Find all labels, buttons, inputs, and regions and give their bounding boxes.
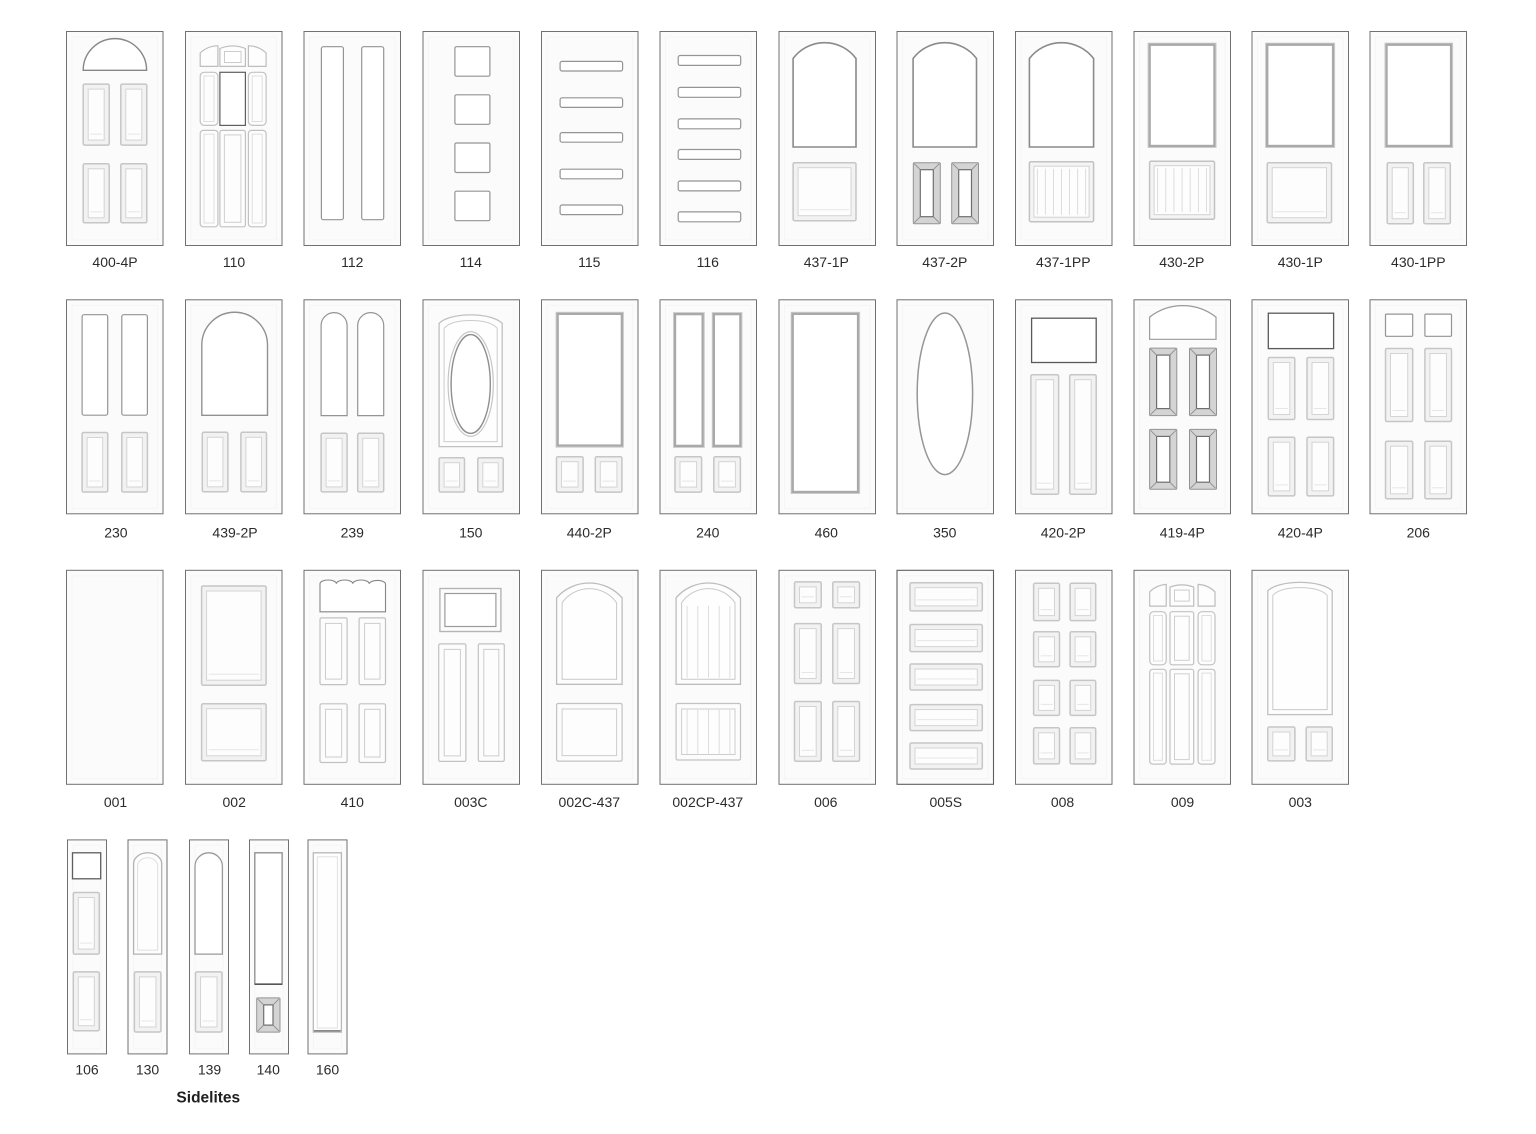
svg-text:430-1PP: 430-1PP xyxy=(1391,254,1445,270)
svg-text:350: 350 xyxy=(933,525,957,541)
svg-text:420-2P: 420-2P xyxy=(1041,525,1086,541)
svg-text:150: 150 xyxy=(459,525,483,541)
svg-text:410: 410 xyxy=(341,794,365,810)
svg-text:106: 106 xyxy=(75,1062,99,1078)
svg-text:419-4P: 419-4P xyxy=(1160,525,1205,541)
svg-text:002CP-437: 002CP-437 xyxy=(672,794,743,810)
svg-text:230: 230 xyxy=(104,525,128,541)
svg-text:439-2P: 439-2P xyxy=(212,525,257,541)
svg-text:002: 002 xyxy=(223,794,247,810)
svg-text:115: 115 xyxy=(578,254,601,270)
svg-text:008: 008 xyxy=(1051,794,1075,810)
svg-text:Sidelites: Sidelites xyxy=(176,1090,240,1107)
svg-text:130: 130 xyxy=(136,1062,160,1078)
svg-text:140: 140 xyxy=(257,1062,281,1078)
svg-text:239: 239 xyxy=(341,525,365,541)
svg-text:420-4P: 420-4P xyxy=(1278,525,1323,541)
svg-text:009: 009 xyxy=(1171,794,1195,810)
svg-text:240: 240 xyxy=(696,525,720,541)
svg-text:400-4P: 400-4P xyxy=(92,254,137,270)
svg-text:460: 460 xyxy=(815,525,839,541)
svg-text:116: 116 xyxy=(697,254,720,270)
svg-text:437-2P: 437-2P xyxy=(922,254,967,270)
svg-text:114: 114 xyxy=(460,254,483,270)
svg-text:003: 003 xyxy=(1289,794,1313,810)
svg-text:112: 112 xyxy=(341,254,364,270)
svg-text:430-2P: 430-2P xyxy=(1159,254,1204,270)
svg-text:437-1PP: 437-1PP xyxy=(1036,254,1090,270)
svg-text:139: 139 xyxy=(198,1062,222,1078)
svg-text:006: 006 xyxy=(814,794,838,810)
svg-text:206: 206 xyxy=(1407,525,1431,541)
svg-text:110: 110 xyxy=(223,254,246,270)
svg-text:430-1P: 430-1P xyxy=(1278,254,1323,270)
svg-text:440-2P: 440-2P xyxy=(567,525,612,541)
svg-text:160: 160 xyxy=(316,1062,340,1078)
svg-text:001: 001 xyxy=(104,794,128,810)
svg-text:003C: 003C xyxy=(454,794,487,810)
svg-text:437-1P: 437-1P xyxy=(804,254,849,270)
svg-text:005S: 005S xyxy=(929,794,962,810)
svg-text:002C-437: 002C-437 xyxy=(559,794,621,810)
